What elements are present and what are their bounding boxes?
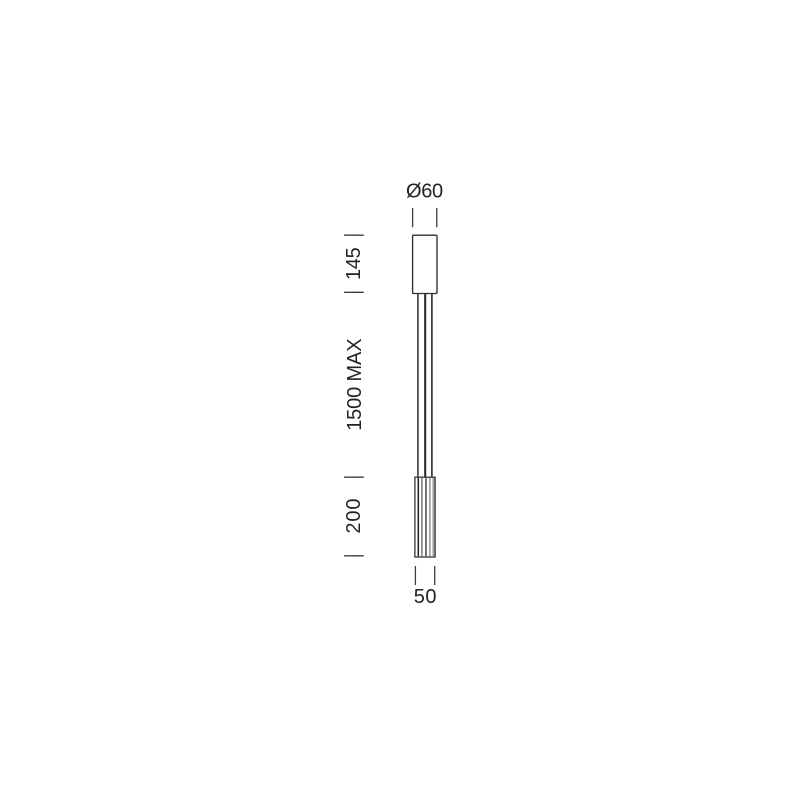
svg-text:1500 MAX: 1500 MAX: [344, 339, 366, 431]
svg-text:Ø60: Ø60: [406, 180, 443, 202]
svg-text:145: 145: [343, 247, 365, 280]
svg-text:200: 200: [343, 498, 365, 534]
svg-text:50: 50: [414, 586, 437, 608]
